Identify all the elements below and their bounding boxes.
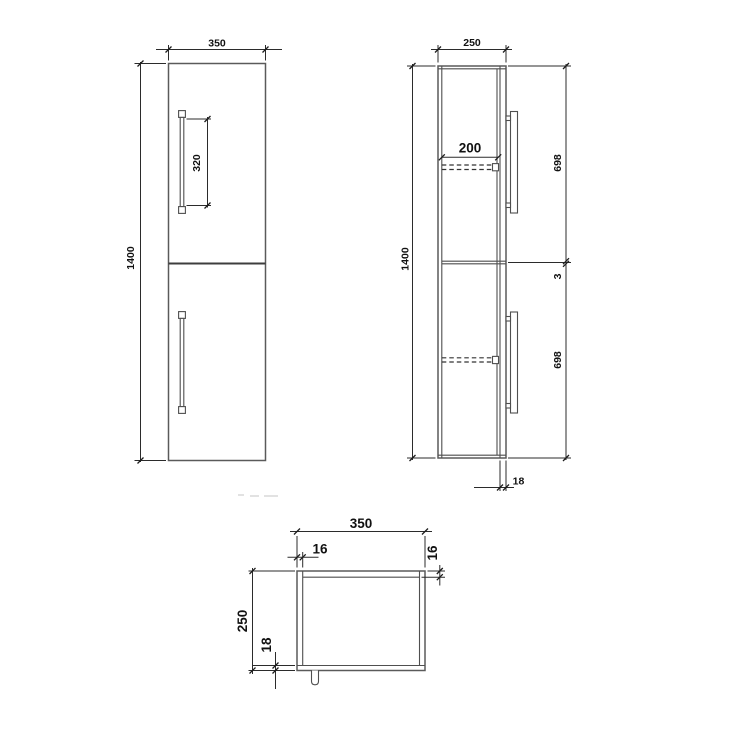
handle-bottom-cap (179, 207, 186, 214)
dimension-lines (474, 461, 514, 492)
dimension-lines (249, 568, 296, 674)
handle-post (506, 404, 511, 409)
cabinet-technical-drawing: 350 1400 320 (0, 0, 750, 750)
dim-side-height: 1400 (400, 63, 436, 461)
dim-front-width-label: 350 (208, 38, 226, 50)
handle-bar (511, 112, 518, 214)
dim-front-panel-thickness: 18 (253, 637, 295, 689)
dim-top-depth-label: 250 (235, 610, 250, 633)
dim-handle-length-label: 320 (191, 154, 203, 172)
dimension-lines (135, 62, 167, 462)
dim-top-depth: 250 (235, 568, 295, 674)
dim-shelf-depth-label: 200 (459, 141, 482, 156)
dim-back-panel-label: 16 (425, 545, 440, 561)
side-view: 250 1400 200 698 3 698 18 (400, 37, 572, 491)
dim-front-height-label: 1400 (125, 246, 137, 270)
handle-post (506, 317, 511, 322)
dim-front-panel-label: 18 (259, 637, 274, 653)
dim-side-depth-label: 250 (463, 37, 481, 49)
handle-bar (180, 117, 184, 206)
shelf-edge (493, 356, 499, 363)
dim-front-width: 350 (156, 38, 282, 61)
front-view: 350 1400 320 (125, 38, 282, 497)
dim-door-gap-label: 3 (552, 273, 564, 279)
top-cabinet-outline (297, 571, 425, 671)
dim-front-height: 1400 (125, 61, 166, 464)
dim-side-depth: 250 (431, 37, 512, 63)
handle-bar (511, 312, 518, 413)
top-handle-profile (312, 671, 319, 685)
side-lower-handle (506, 312, 518, 413)
dim-side-panel-label: 16 (312, 542, 328, 557)
handle-bottom-cap (179, 407, 186, 414)
dim-door-thickness-label: 18 (513, 476, 525, 488)
dim-door-thickness: 18 (474, 461, 524, 492)
handle-top-cap (179, 312, 186, 319)
handle-top-cap (179, 111, 186, 118)
dim-top-width: 350 (290, 516, 432, 568)
dim-side-panel-thickness: 16 (288, 542, 328, 568)
handle-post (506, 116, 511, 121)
dimension-lines (290, 532, 432, 568)
side-upper-handle (506, 112, 518, 214)
dim-upper-door-label: 698 (552, 154, 564, 172)
handle-bar (180, 318, 184, 406)
dim-side-height-label: 1400 (400, 247, 412, 271)
dim-top-width-label: 350 (350, 516, 373, 531)
shelf-edge (493, 164, 499, 171)
dim-lower-door-label: 698 (552, 351, 564, 369)
artifact-marks (238, 495, 278, 496)
top-view: 350 16 16 250 18 (235, 516, 445, 689)
handle-post (506, 203, 511, 208)
side-cabinet-outline (438, 66, 506, 458)
